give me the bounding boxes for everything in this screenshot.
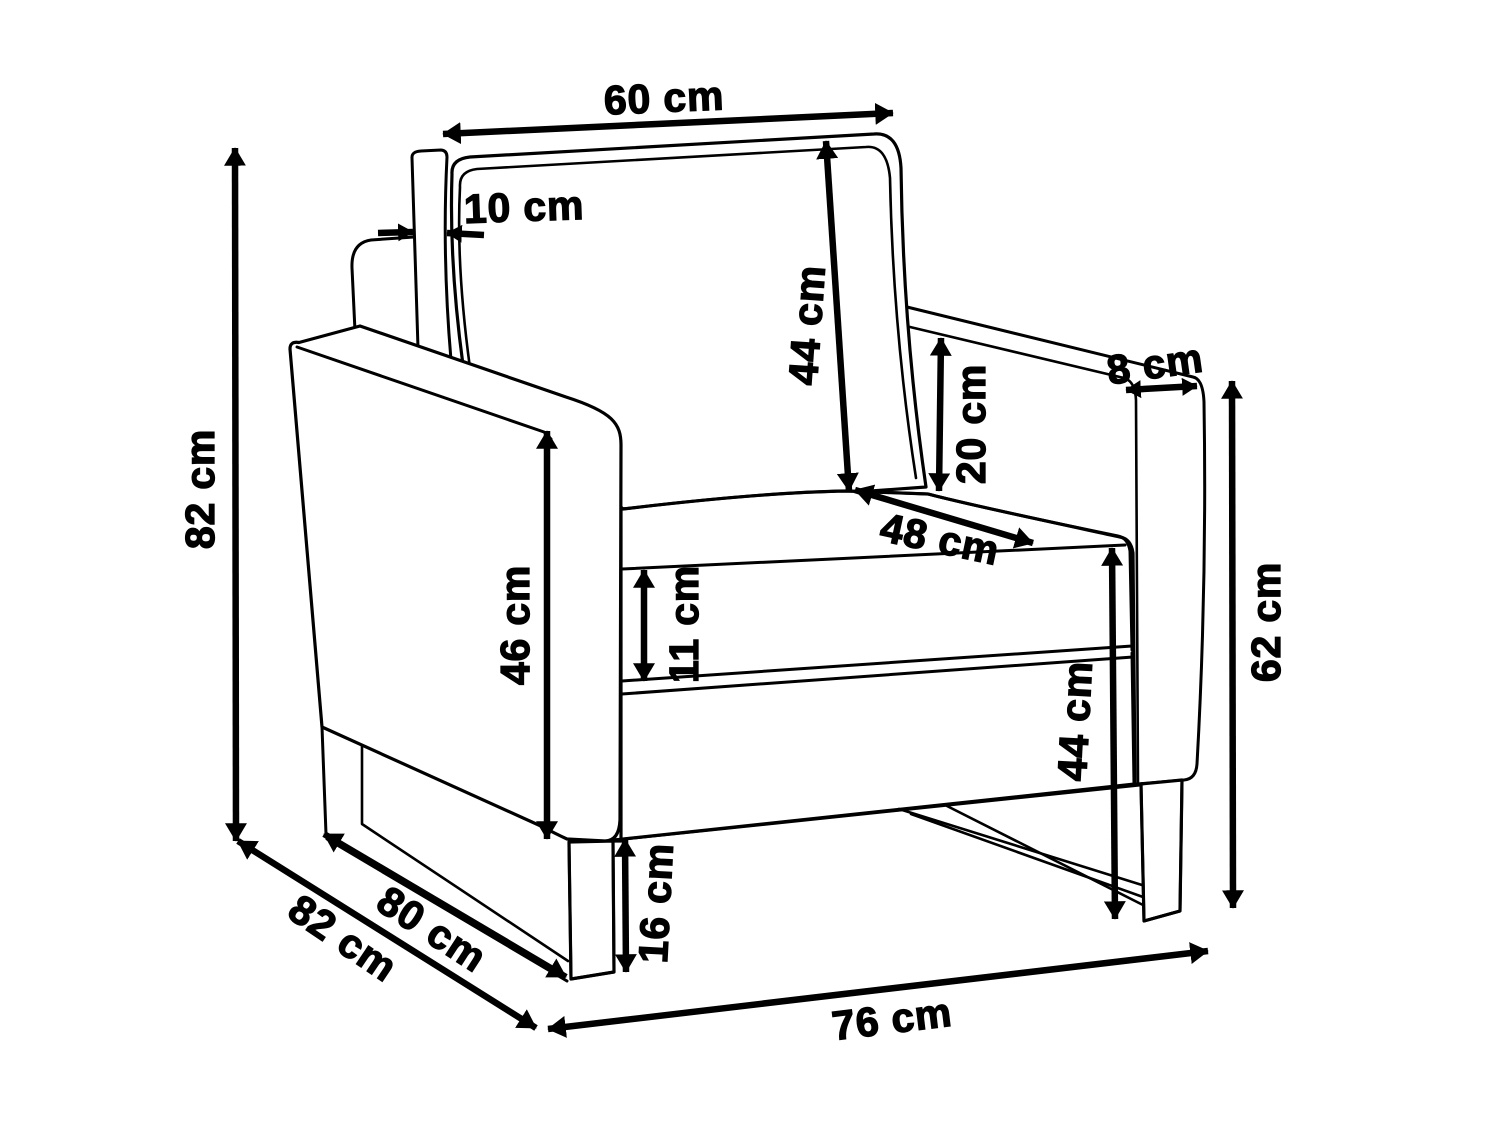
svg-text:16 cm: 16 cm [630, 842, 682, 965]
svg-text:60 cm: 60 cm [603, 72, 725, 123]
svg-text:20 cm: 20 cm [948, 364, 994, 484]
svg-text:44 cm: 44 cm [1049, 660, 1101, 783]
svg-text:44 cm: 44 cm [780, 263, 834, 386]
svg-text:46 cm: 46 cm [492, 565, 538, 685]
svg-text:11 cm: 11 cm [661, 565, 707, 683]
svg-text:62 cm: 62 cm [1243, 562, 1289, 682]
svg-text:82 cm: 82 cm [177, 429, 223, 549]
svg-text:10 cm: 10 cm [463, 182, 585, 232]
